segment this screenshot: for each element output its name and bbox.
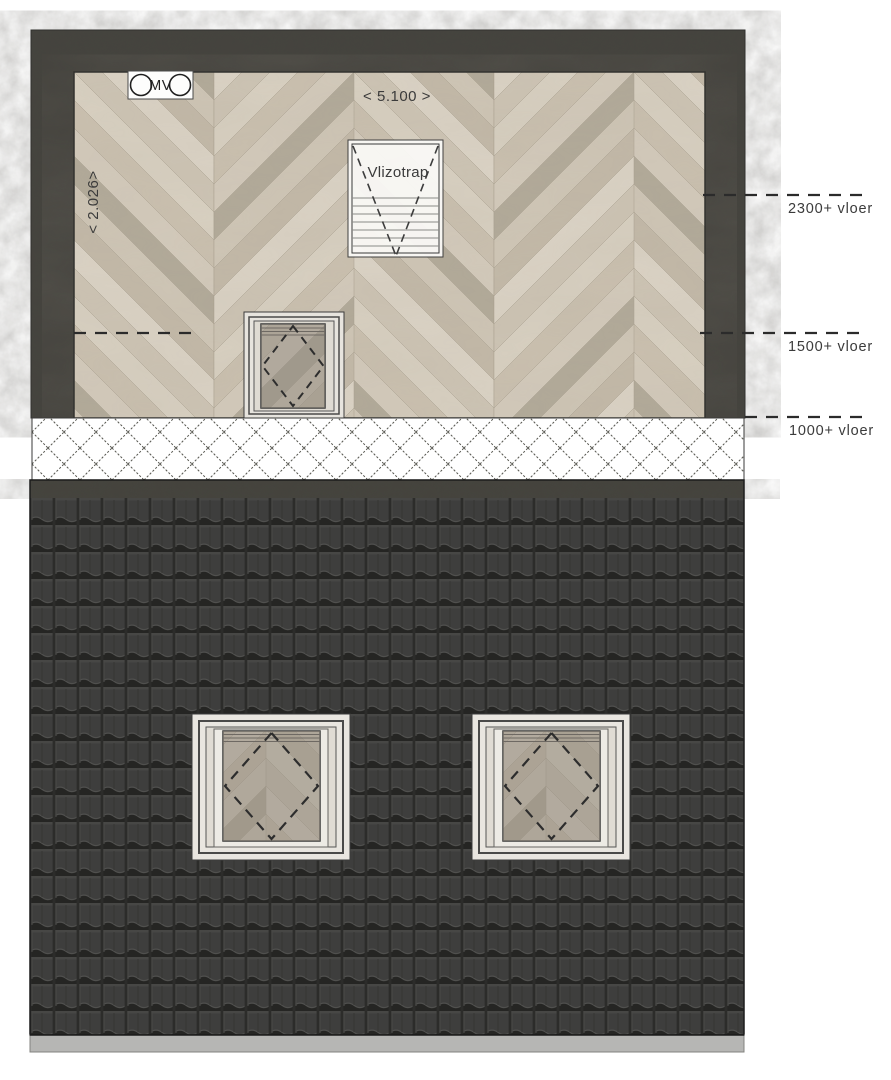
loft-ladder-label: Vlizotrap <box>367 164 428 181</box>
architectural-drawing: MV < 5.100 > < 2.026> Vlizotrap <box>0 0 891 1080</box>
loft-ladder-hatch: Vlizotrap <box>348 140 443 257</box>
gutter <box>30 1035 744 1052</box>
attic-floorplan-page: MV < 5.100 > < 2.026> Vlizotrap <box>0 0 891 1080</box>
width-dimension-label: < 5.100 > <box>363 88 431 105</box>
mv-symbol: MV <box>128 71 193 99</box>
plan-roof-window <box>244 312 344 419</box>
level-label-1500: 1500+ vloer <box>788 339 873 355</box>
roof-tiles <box>30 498 744 1035</box>
mv-label: MV <box>149 78 172 94</box>
roof-plane <box>30 480 744 1035</box>
insulation-band <box>32 418 744 480</box>
level-label-1000: 1000+ vloer <box>789 423 874 439</box>
roof-window-right <box>472 714 630 860</box>
roof-window-left <box>192 714 350 860</box>
depth-dimension-label: < 2.026> <box>85 170 102 233</box>
level-label-2300: 2300+ vloer <box>788 201 873 217</box>
